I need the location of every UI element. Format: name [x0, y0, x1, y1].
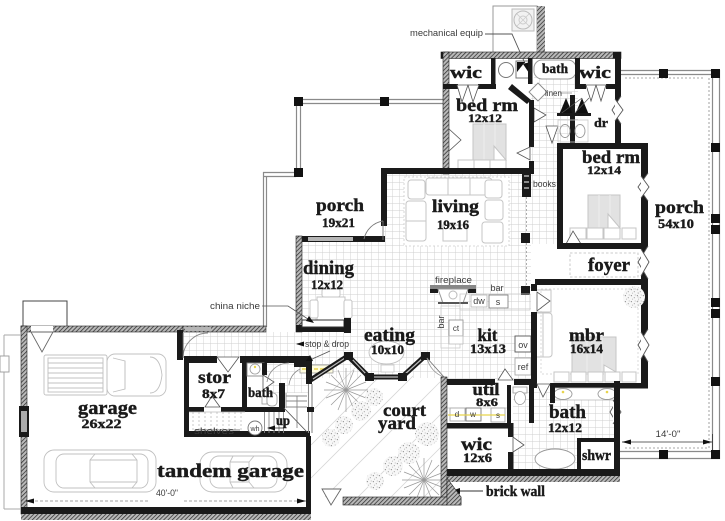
svg-text:d: d	[455, 410, 459, 419]
svg-text:13x13: 13x13	[470, 341, 507, 356]
svg-text:ct: ct	[453, 324, 460, 333]
svg-text:wic: wic	[450, 63, 483, 82]
svg-text:dr: dr	[594, 115, 608, 130]
svg-text:16x14: 16x14	[570, 341, 604, 356]
svg-text:14'-0": 14'-0"	[656, 429, 681, 439]
svg-text:ov: ov	[518, 340, 528, 350]
svg-text:40'-0": 40'-0"	[156, 488, 178, 498]
svg-text:s: s	[496, 411, 500, 420]
svg-text:bar: bar	[490, 283, 503, 293]
svg-text:8x7: 8x7	[202, 386, 226, 401]
svg-text:shwr: shwr	[582, 448, 611, 464]
svg-text:10x10: 10x10	[371, 342, 404, 357]
svg-text:up: up	[276, 414, 290, 429]
svg-text:wic: wic	[579, 63, 612, 82]
svg-text:19x21: 19x21	[322, 215, 355, 230]
svg-text:tandem garage: tandem garage	[157, 461, 304, 482]
svg-text:12x14: 12x14	[587, 163, 621, 177]
svg-text:8x6: 8x6	[476, 395, 498, 409]
svg-text:shelves: shelves	[194, 426, 235, 436]
svg-text:bath: bath	[248, 386, 273, 401]
svg-text:stor: stor	[198, 367, 231, 387]
svg-text:bar: bar	[436, 315, 446, 328]
svg-text:bath: bath	[542, 62, 568, 77]
svg-text:19x16: 19x16	[437, 217, 469, 232]
svg-text:26x22: 26x22	[82, 416, 122, 431]
svg-text:dining: dining	[303, 258, 354, 279]
svg-text:ref: ref	[518, 362, 529, 372]
svg-text:12x12: 12x12	[468, 111, 502, 125]
svg-text:linen: linen	[545, 88, 562, 98]
svg-text:books: books	[533, 179, 556, 189]
svg-text:yard: yard	[378, 413, 416, 433]
svg-text:foyer: foyer	[588, 255, 631, 276]
svg-text:s: s	[496, 297, 501, 307]
svg-text:mechanical equip: mechanical equip	[410, 28, 483, 38]
svg-text:wh: wh	[250, 426, 260, 433]
svg-text:fireplace: fireplace	[435, 275, 472, 285]
svg-text:dw: dw	[473, 296, 485, 306]
svg-text:porch: porch	[316, 195, 364, 215]
svg-text:china niche: china niche	[210, 301, 260, 311]
svg-text:12x12: 12x12	[548, 420, 582, 435]
svg-text:54x10: 54x10	[658, 216, 694, 231]
svg-text:w: w	[469, 410, 476, 419]
svg-text:porch: porch	[655, 197, 704, 217]
svg-text:living: living	[432, 196, 479, 216]
svg-text:brick wall: brick wall	[486, 484, 545, 500]
svg-text:stop & drop: stop & drop	[305, 339, 349, 349]
svg-text:12x12: 12x12	[311, 277, 343, 292]
svg-text:12x6: 12x6	[463, 450, 493, 465]
